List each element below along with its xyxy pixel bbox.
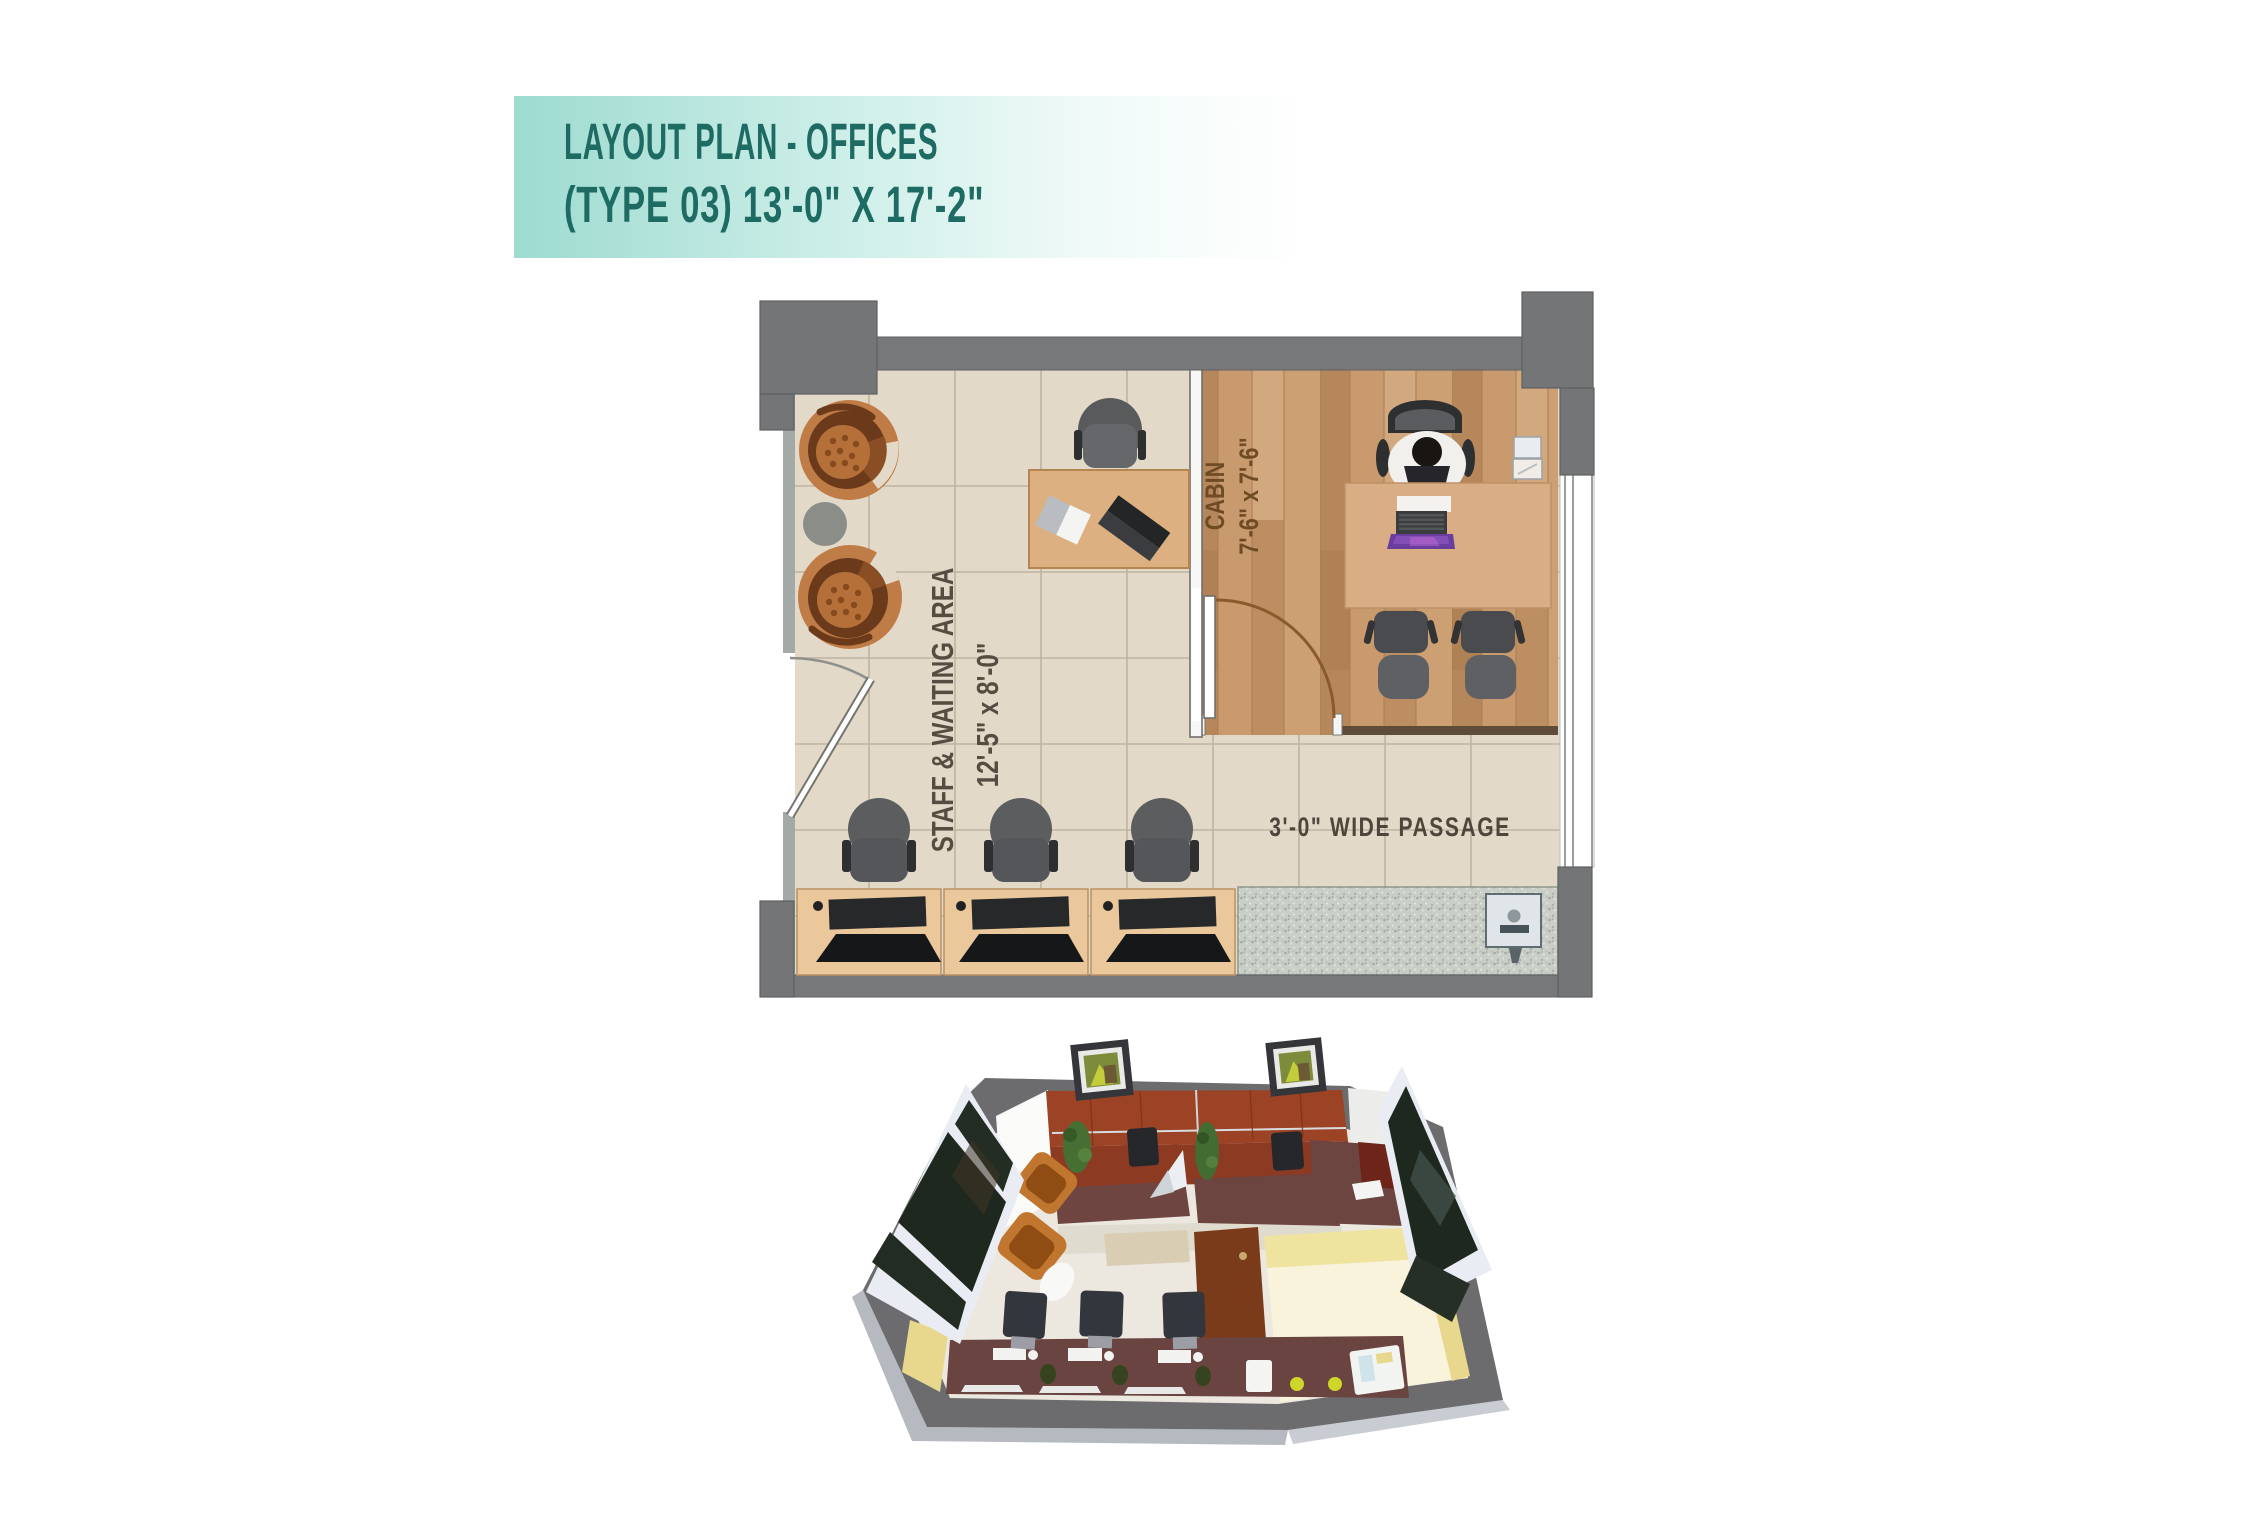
- svg-text:7'-6" x 7'-6": 7'-6" x 7'-6": [1235, 437, 1265, 554]
- svg-text:CABIN: CABIN: [1201, 462, 1231, 530]
- svg-text:3'-0" WIDE PASSAGE: 3'-0" WIDE PASSAGE: [1269, 813, 1511, 843]
- svg-text:STAFF & WAITING AREA: STAFF & WAITING AREA: [925, 568, 960, 853]
- svg-text:12'-5" x 8'-0": 12'-5" x 8'-0": [970, 643, 1005, 788]
- svg-text:LAYOUT PLAN - OFFICES: LAYOUT PLAN - OFFICES: [564, 113, 938, 170]
- svg-text:(TYPE 03) 13'-0" X 17'-2": (TYPE 03) 13'-0" X 17'-2": [564, 176, 984, 233]
